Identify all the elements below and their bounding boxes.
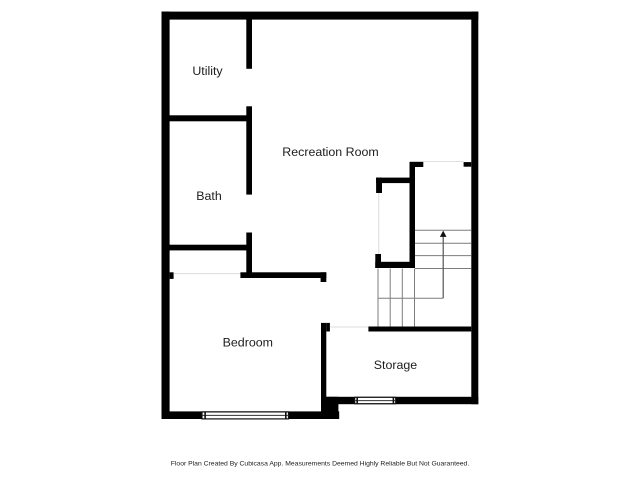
svg-text:Bath: Bath [196, 189, 222, 203]
svg-text:Storage: Storage [374, 358, 418, 372]
svg-text:Bedroom: Bedroom [223, 336, 273, 350]
svg-text:Recreation Room: Recreation Room [282, 145, 378, 159]
svg-text:Floor Plan Created By Cubicasa: Floor Plan Created By Cubicasa App. Meas… [171, 461, 470, 468]
svg-text:Utility: Utility [192, 64, 223, 78]
